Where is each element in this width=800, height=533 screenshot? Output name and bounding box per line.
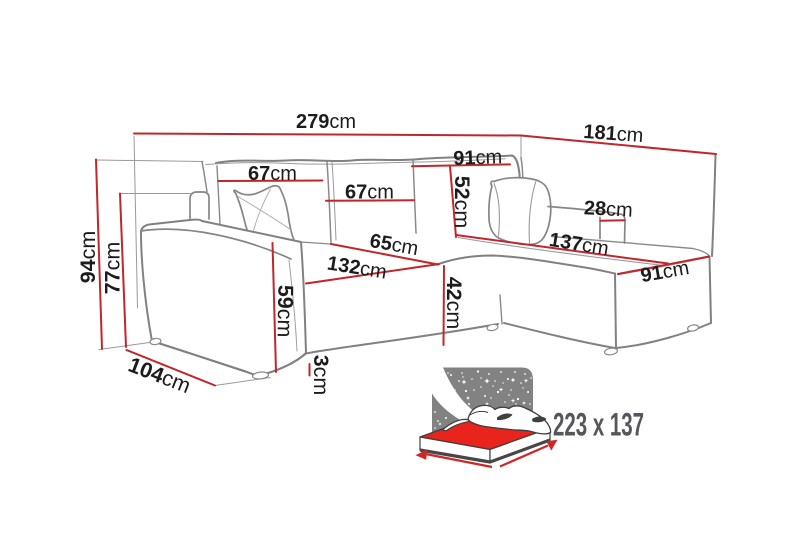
svg-text:67cm: 67cm — [345, 182, 394, 204]
svg-text:65cm: 65cm — [368, 230, 420, 260]
svg-text:59cm: 59cm — [273, 285, 298, 338]
svg-text:42cm: 42cm — [442, 277, 466, 330]
svg-text:181cm: 181cm — [583, 121, 644, 147]
svg-text:137cm: 137cm — [548, 229, 611, 260]
svg-text:223 x 137: 223 x 137 — [553, 406, 644, 443]
svg-text:91cm: 91cm — [453, 146, 503, 170]
svg-text:104cm: 104cm — [125, 353, 194, 399]
svg-text:3cm: 3cm — [309, 355, 333, 396]
svg-text:67cm: 67cm — [248, 163, 297, 185]
svg-text:52cm: 52cm — [450, 176, 474, 229]
svg-text:77cm: 77cm — [101, 242, 125, 295]
svg-text:94cm: 94cm — [76, 231, 100, 284]
svg-text:28cm: 28cm — [583, 197, 633, 222]
svg-text:279cm: 279cm — [296, 111, 356, 133]
